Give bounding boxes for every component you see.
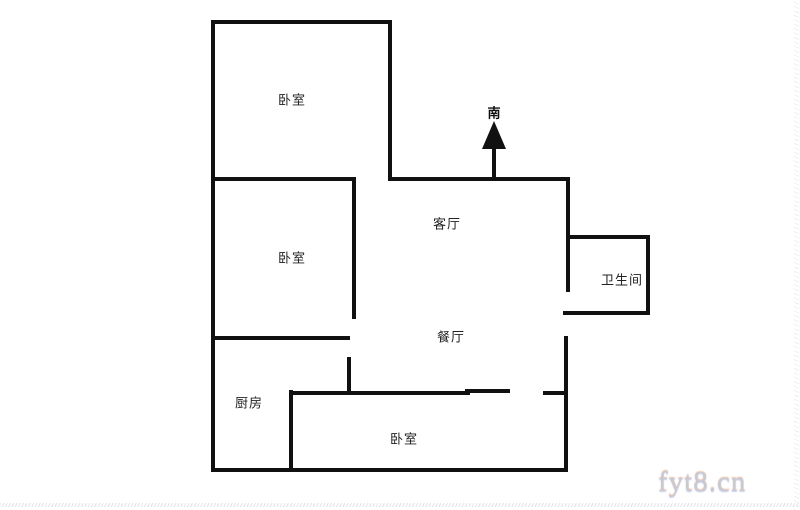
wall-bedroom-middle-bottom bbox=[211, 336, 350, 340]
wall-bottom-outer bbox=[211, 468, 568, 472]
room-label-bathroom: 卫生间 bbox=[601, 270, 643, 289]
wall-living-top bbox=[388, 177, 570, 181]
wall-bathroom-bottom bbox=[563, 311, 650, 315]
wall-right-lower bbox=[564, 336, 568, 472]
wall-bedroom-bottom-top-2 bbox=[465, 389, 510, 393]
room-label-bedroom-top: 卧室 bbox=[278, 90, 306, 109]
wall-top-bedroom-top bbox=[211, 20, 392, 24]
site-watermark: fyt8.cn bbox=[658, 466, 746, 499]
wall-kitchen-door-stub bbox=[347, 357, 351, 391]
compass-arrow-shaft-icon bbox=[492, 148, 496, 178]
wall-bedroom-middle-right bbox=[352, 177, 356, 319]
scan-edge-right bbox=[794, 0, 799, 510]
wall-bathroom-top bbox=[566, 235, 650, 239]
compass-arrow-head-icon bbox=[482, 121, 506, 149]
wall-bedroom-bottom-left bbox=[289, 390, 293, 472]
room-label-dining-room: 餐厅 bbox=[437, 327, 465, 346]
room-label-living-room: 客厅 bbox=[433, 214, 461, 233]
room-label-kitchen: 厨房 bbox=[235, 393, 263, 412]
scan-edge-bottom bbox=[0, 503, 800, 507]
room-label-bedroom-middle: 卧室 bbox=[278, 248, 306, 267]
wall-top-bedroom-right bbox=[388, 20, 392, 181]
wall-bedroom-middle-top bbox=[213, 177, 356, 181]
wall-bedroom-bottom-top bbox=[289, 391, 470, 395]
wall-left-outer bbox=[211, 20, 215, 472]
floor-plan-image: 南 卧室 卧室 客厅 餐厅 卫生间 厨房 卧室 fyt8.cn bbox=[0, 0, 800, 510]
wall-bathroom-right bbox=[646, 235, 650, 315]
compass-south-label: 南 bbox=[487, 103, 500, 122]
room-label-bedroom-bottom: 卧室 bbox=[390, 429, 418, 448]
wall-bedroom-bottom-stub bbox=[543, 391, 568, 395]
